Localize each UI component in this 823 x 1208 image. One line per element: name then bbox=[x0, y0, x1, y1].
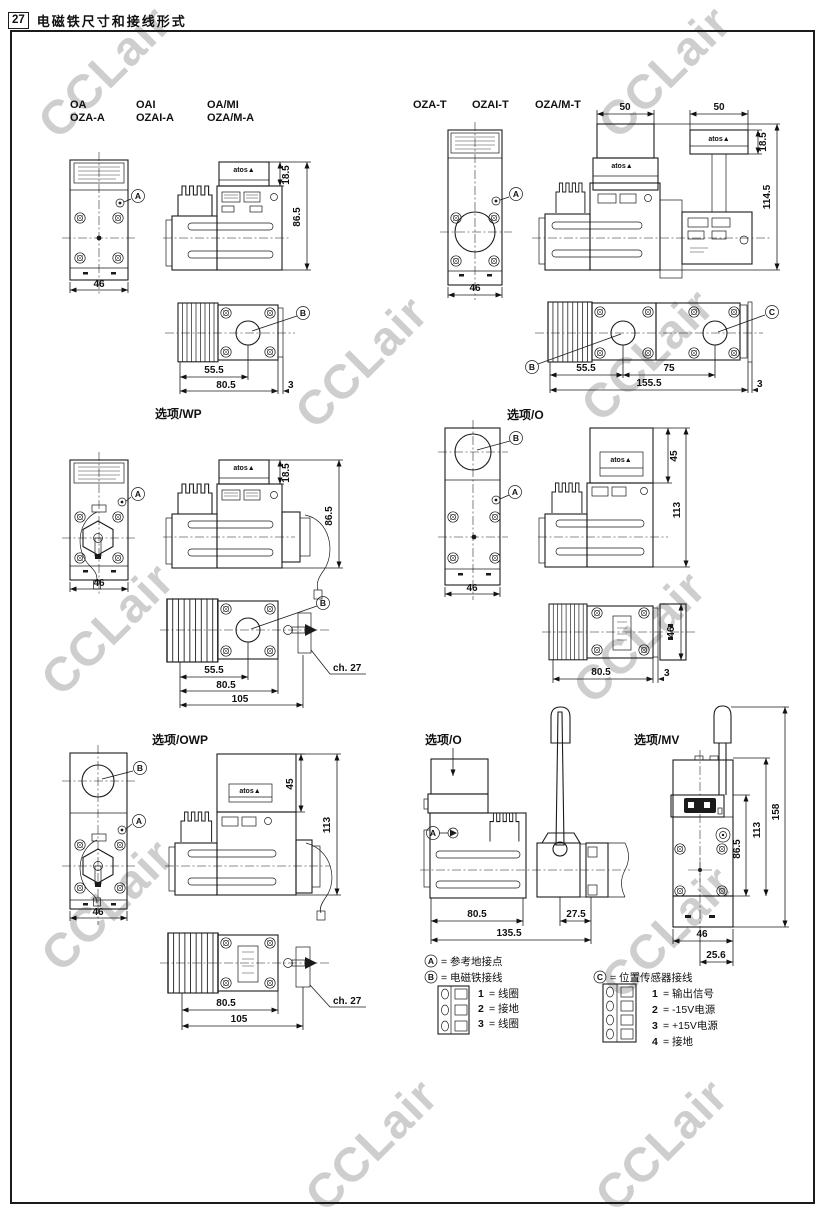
dim-width: 46 bbox=[696, 929, 708, 940]
oza-t-bottom-view: B C 55.5 75 155.5 3 bbox=[526, 302, 779, 393]
dim-height: 113 bbox=[672, 501, 683, 518]
dim-height: 113 bbox=[752, 821, 763, 838]
svg-text:A: A bbox=[136, 816, 142, 826]
model-label: OA/MI bbox=[207, 99, 239, 111]
dim-height: 86.5 bbox=[292, 207, 303, 227]
pin-label: = 线圈 bbox=[489, 987, 519, 1000]
marker-a: A bbox=[500, 188, 523, 201]
pin-label: = +15V电源 bbox=[663, 1019, 718, 1032]
legend-b: B = 电磁铁接线 1 = 线圈 2 = 接地 3 = 线圈 bbox=[425, 971, 520, 1034]
dim-overall: 105 bbox=[232, 694, 249, 705]
dim-overall: 105 bbox=[231, 1014, 248, 1025]
dim-width: 46 bbox=[92, 907, 104, 918]
dim-conn1: 50 bbox=[619, 102, 631, 113]
model-label: OZAI-A bbox=[136, 112, 174, 124]
wp-side-view: atos▲ 18.5 86.5 bbox=[163, 460, 343, 599]
dim-plate: 3 bbox=[664, 668, 670, 679]
model-label: OZA/M-A bbox=[207, 112, 254, 124]
group-option-o-lever: 选项/O A bbox=[420, 707, 630, 944]
marker-b: B bbox=[102, 762, 147, 780]
marker-a: A bbox=[427, 827, 449, 840]
o-end-view: B A 46 bbox=[438, 420, 523, 600]
drawing-canvas: OA OZA-A OAI OZAI-A OA/MI OZA/M-A bbox=[0, 0, 823, 1208]
owp-end-view: B A 46 bbox=[62, 745, 147, 925]
dim-width: 46 bbox=[93, 578, 105, 589]
brand-logo: atos▲ bbox=[611, 163, 632, 170]
dim-conn2: 50 bbox=[713, 102, 725, 113]
svg-text:B: B bbox=[529, 362, 535, 372]
model-label: OA bbox=[70, 99, 87, 111]
marker-b: B bbox=[526, 334, 622, 374]
pin-number: 2 bbox=[478, 1003, 484, 1015]
svg-text:B: B bbox=[513, 433, 519, 443]
svg-text:B: B bbox=[428, 972, 434, 982]
dim-width: 46 bbox=[466, 583, 478, 594]
group-oza-t: OZA-T OZAI-T OZA/M-T A bbox=[413, 99, 780, 393]
option-title: 选项/MV bbox=[634, 732, 679, 747]
svg-text:B: B bbox=[320, 598, 326, 608]
legend-a: A = 参考地接点 bbox=[425, 955, 503, 968]
dim-coil-height: 86.5 bbox=[732, 839, 743, 859]
pin-label: = -15V电源 bbox=[663, 1003, 716, 1016]
oa-side-view: atos▲ 18.5 86.5 bbox=[163, 162, 311, 270]
pin-label: = 输出信号 bbox=[663, 987, 714, 1000]
svg-text:C: C bbox=[597, 972, 603, 982]
dim-top-height: 45 bbox=[669, 450, 680, 462]
brand-logo: atos▲ bbox=[233, 465, 254, 472]
legend: A = 参考地接点 B = 电磁铁接线 1 = 线圈 bbox=[425, 955, 718, 1048]
svg-text:A: A bbox=[428, 956, 434, 966]
dim-body-length: 80.5 bbox=[216, 380, 236, 391]
dim-width: 46 bbox=[469, 283, 481, 294]
page-title: 电磁铁尺寸和接线形式 bbox=[37, 11, 187, 30]
option-title: 选项/WP bbox=[155, 406, 202, 421]
dim-hole-x: 55.5 bbox=[204, 665, 224, 676]
wp-end-view: A 46 bbox=[62, 452, 145, 596]
dim-depth: 46 bbox=[666, 626, 677, 638]
group-option-o: 选项/O B A bbox=[438, 407, 695, 683]
wp-bottom-view: B ch. 27 55.5 80.5 105 bbox=[160, 597, 366, 709]
pin-number: 1 bbox=[478, 988, 484, 1000]
dim-hole-span: 75 bbox=[663, 363, 675, 374]
owp-bottom-view: ch. 27 80.5 105 bbox=[160, 933, 366, 1030]
pin-number: 3 bbox=[652, 1020, 658, 1032]
dim-connector-height: 18.5 bbox=[281, 165, 292, 185]
dim-width: 46 bbox=[93, 279, 105, 290]
svg-text:A: A bbox=[430, 828, 436, 838]
dim-hole-x: 55.5 bbox=[576, 363, 596, 374]
dim-height: 113 bbox=[322, 816, 333, 833]
dim-body-length: 80.5 bbox=[467, 909, 487, 920]
legend-b-label: = 电磁铁接线 bbox=[441, 971, 503, 984]
legend-c-label: = 位置传感器接线 bbox=[610, 971, 693, 984]
oa-bottom-view: B 55.5 80.5 3 bbox=[165, 303, 310, 394]
svg-text:B: B bbox=[300, 308, 306, 318]
model-label: OAI bbox=[136, 99, 156, 111]
group-option-mv: 选项/MV 86.5 bbox=[634, 706, 789, 966]
group-option-owp: 选项/OWP B bbox=[62, 732, 366, 1030]
connector-4pin-icon bbox=[603, 984, 636, 1042]
dim-total-height: 158 bbox=[771, 803, 782, 820]
svg-text:A: A bbox=[512, 487, 518, 497]
brand-logo: atos▲ bbox=[610, 457, 631, 464]
model-label: OZA-T bbox=[413, 99, 447, 111]
pin-label: = 接地 bbox=[489, 1002, 520, 1015]
svg-text:C: C bbox=[769, 307, 775, 317]
model-label: OZA/M-T bbox=[535, 99, 581, 111]
marker-a: A bbox=[500, 486, 522, 500]
oza-t-side-view: atos▲ atos▲ bbox=[532, 102, 780, 278]
dim-hex: ch. 27 bbox=[333, 663, 362, 674]
dim-lever-x: 27.5 bbox=[566, 909, 586, 920]
dim-total-length: 155.5 bbox=[636, 378, 661, 389]
pin-number: 1 bbox=[652, 988, 658, 1000]
dim-overall: 135.5 bbox=[496, 928, 521, 939]
pin-number: 2 bbox=[652, 1004, 658, 1016]
pin-number: 4 bbox=[652, 1036, 658, 1048]
dim-body-length: 80.5 bbox=[216, 998, 236, 1009]
svg-text:A: A bbox=[135, 191, 141, 201]
dim-body-length: 80.5 bbox=[216, 680, 236, 691]
o-side-view: atos▲ 45 113 bbox=[538, 428, 690, 567]
svg-text:A: A bbox=[135, 489, 141, 499]
connector-3pin-icon bbox=[438, 986, 469, 1034]
group-option-wp: 选项/WP A bbox=[62, 406, 366, 708]
dim-plate: 3 bbox=[757, 379, 763, 390]
brand-logo: atos▲ bbox=[239, 788, 260, 795]
svg-text:A: A bbox=[513, 189, 519, 199]
svg-text:B: B bbox=[137, 763, 143, 773]
oa-end-view: A 46 bbox=[62, 152, 145, 296]
dim-hole-x: 55.5 bbox=[204, 365, 224, 376]
option-title: 选项/OWP bbox=[152, 732, 208, 747]
marker-a: A bbox=[126, 815, 146, 830]
pin-label: = 线圈 bbox=[489, 1017, 519, 1030]
pin-label: = 接地 bbox=[663, 1035, 694, 1048]
marker-a: A bbox=[126, 488, 145, 502]
pin-number: 3 bbox=[478, 1018, 484, 1030]
dim-connector-height: 18.5 bbox=[758, 132, 769, 152]
brand-logo: atos▲ bbox=[708, 136, 729, 143]
section-number: 27 bbox=[8, 12, 29, 29]
dim-offset: 25.6 bbox=[706, 950, 726, 961]
dim-connector-height: 18.5 bbox=[281, 463, 292, 483]
page-header: 27 电磁铁尺寸和接线形式 bbox=[8, 11, 187, 30]
dim-height: 86.5 bbox=[324, 506, 335, 526]
dim-top-height: 45 bbox=[285, 778, 296, 790]
group-oa: OA OZA-A OAI OZAI-A OA/MI OZA/M-A bbox=[62, 99, 311, 394]
owp-side-view: atos▲ 45 113 bbox=[165, 754, 341, 920]
oza-t-end-view: A 46 bbox=[440, 122, 523, 300]
option-title: 选项/O bbox=[425, 732, 462, 747]
model-label: OZA-A bbox=[70, 112, 105, 124]
dim-height: 114.5 bbox=[762, 184, 773, 209]
dim-body-length: 80.5 bbox=[591, 667, 611, 678]
option-title: 选项/O bbox=[507, 407, 544, 422]
datasheet-page: CCLair CCLair CCLair CCLair CCLair CCLai… bbox=[0, 0, 823, 1208]
legend-c: C = 位置传感器接线 1 = 输出信号 2 = -15V电源 bbox=[594, 971, 718, 1048]
marker-b: B bbox=[252, 307, 310, 332]
legend-a-label: = 参考地接点 bbox=[441, 955, 503, 968]
dim-hex: ch. 27 bbox=[333, 996, 362, 1007]
brand-logo: atos▲ bbox=[233, 167, 254, 174]
o-bottom-view: 80.5 3 46 bbox=[542, 604, 695, 683]
model-label: OZAI-T bbox=[472, 99, 509, 111]
marker-a: A bbox=[124, 190, 145, 203]
mv-end-view: 86.5 113 158 46 25.6 bbox=[671, 706, 789, 966]
dim-plate: 3 bbox=[288, 380, 294, 391]
